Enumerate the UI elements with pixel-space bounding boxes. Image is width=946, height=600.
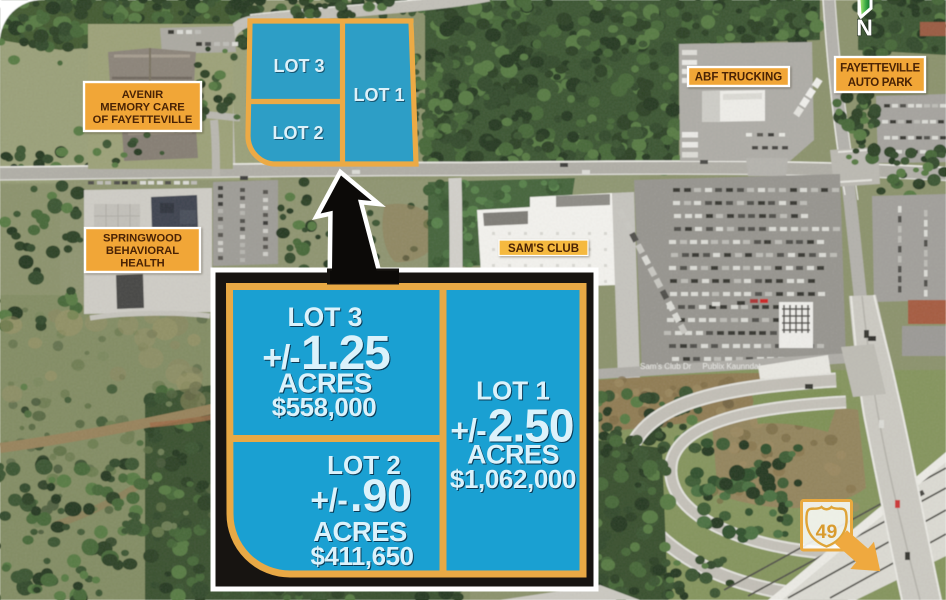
svg-text:SAM'S CLUB: SAM'S CLUB — [508, 243, 579, 255]
svg-text:LOT 3: LOT 3 — [273, 56, 324, 76]
svg-text:HEALTH: HEALTH — [120, 258, 165, 270]
svg-text:ABF TRUCKING: ABF TRUCKING — [695, 72, 783, 84]
svg-text:OF FAYETTEVILLE: OF FAYETTEVILLE — [93, 114, 193, 126]
svg-text:LOT 1: LOT 1 — [353, 85, 404, 105]
svg-text:MEMORY CARE: MEMORY CARE — [100, 101, 185, 113]
svg-text:SPRINGWOOD: SPRINGWOOD — [103, 232, 182, 244]
svg-text:$558,000: $558,000 — [272, 392, 376, 422]
svg-text:AUTO PARK: AUTO PARK — [848, 77, 914, 89]
svg-text:AVENIR: AVENIR — [122, 89, 163, 101]
svg-text:FAYETTEVILLE: FAYETTEVILLE — [840, 62, 920, 74]
svg-text:49: 49 — [816, 521, 838, 543]
svg-text:LOT 2: LOT 2 — [272, 123, 323, 143]
svg-text:$411,650: $411,650 — [310, 541, 413, 571]
svg-text:$1,062,000: $1,062,000 — [450, 464, 576, 494]
svg-text:N: N — [856, 15, 873, 41]
svg-text:BEHAVIORAL: BEHAVIORAL — [106, 245, 179, 257]
